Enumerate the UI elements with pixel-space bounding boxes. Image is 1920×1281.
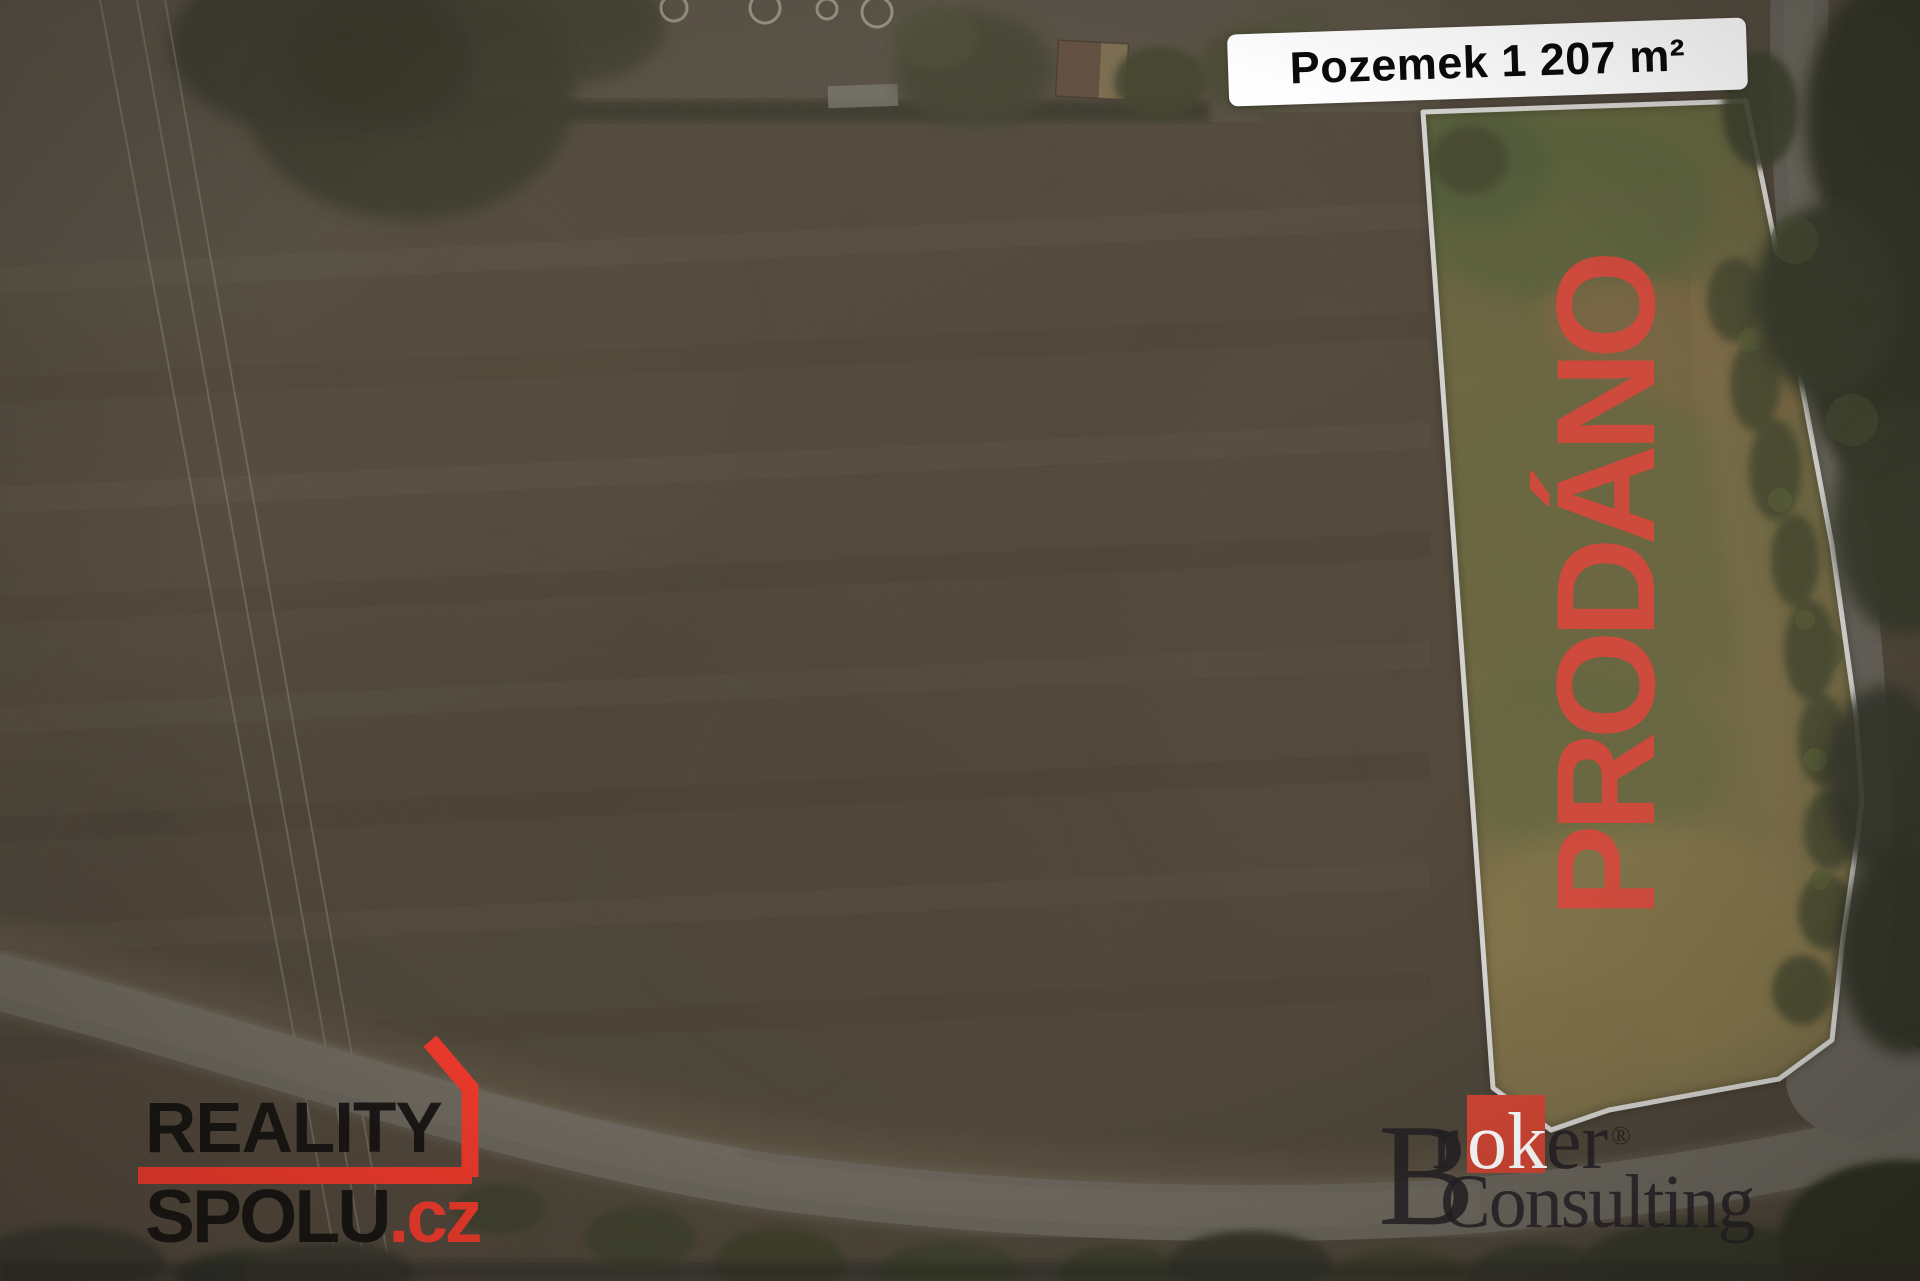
spolu-word: SPOLU xyxy=(145,1174,388,1258)
registered-mark: ® xyxy=(1611,1123,1631,1149)
cz-tld-text: .cz xyxy=(388,1174,479,1258)
consulting-text: Consulting xyxy=(1440,1164,1754,1240)
spolu-text: SPOLU.cz xyxy=(145,1179,479,1254)
sold-watermark: PRODÁNO xyxy=(1536,258,1676,918)
broker-consulting-logo: B r ok er ® Consulting xyxy=(1380,1080,1840,1270)
aerial-photo: Pozemek 1 207 m² PRODÁNO REALITY SPOLU.c… xyxy=(0,0,1920,1281)
reality-text: REALITY xyxy=(145,1093,442,1164)
reality-spolu-logo: REALITY SPOLU.cz xyxy=(130,1025,500,1265)
